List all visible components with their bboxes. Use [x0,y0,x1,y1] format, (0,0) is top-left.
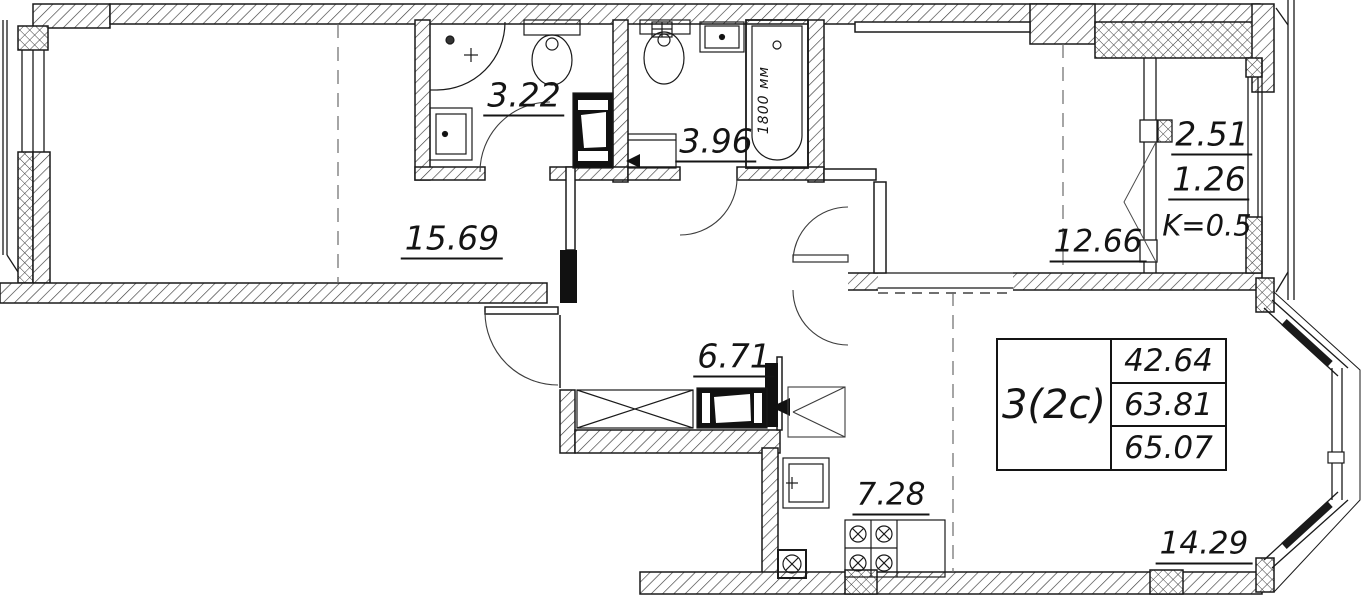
stove [845,520,945,577]
door-openings [793,271,1013,292]
walls [0,4,1274,594]
floor-plan-drawing [0,0,1370,600]
floor-plan: 15.69 3.22 3.96 12.66 6.71 7.28 14.29 2.… [0,0,1370,600]
bay-window [1264,292,1360,592]
stair-landing [788,387,845,437]
hall-area-label: 6.71 [693,339,774,378]
door-swings [480,102,848,385]
balcony-area-label: 2.51 [1171,117,1252,156]
balcony-reduced-area-label: 1.26 [1168,162,1249,201]
kitchen-area-label: 7.28 [852,479,929,516]
living-area-label: 14.29 [1156,528,1253,565]
water-heater [573,93,613,168]
bath2-area-label: 3.96 [675,124,756,163]
wardrobe [577,390,693,428]
sink [700,22,744,52]
hall-cabinet [697,388,767,428]
bath1-area-label: 3.22 [483,78,564,117]
unit-type-label: 3(2с) [998,340,1112,469]
area-summary-table: 3(2с) 42.64 63.81 65.07 [996,338,1227,471]
bathtub-dimension-label: 1800 мм [756,66,772,134]
sink [430,108,472,160]
kitchen-sink [783,458,829,508]
living-area-value: 42.64 [1112,340,1225,382]
washing-machine [626,134,676,168]
hall-furniture [577,388,767,428]
room1-area-label: 15.69 [401,221,503,260]
room2-area-label: 12.66 [1050,226,1147,263]
total-area-value: 65.07 [1112,425,1225,469]
balcony-coefficient-label: K=0.5 [1158,211,1255,244]
apartment-area-value: 63.81 [1112,382,1225,426]
